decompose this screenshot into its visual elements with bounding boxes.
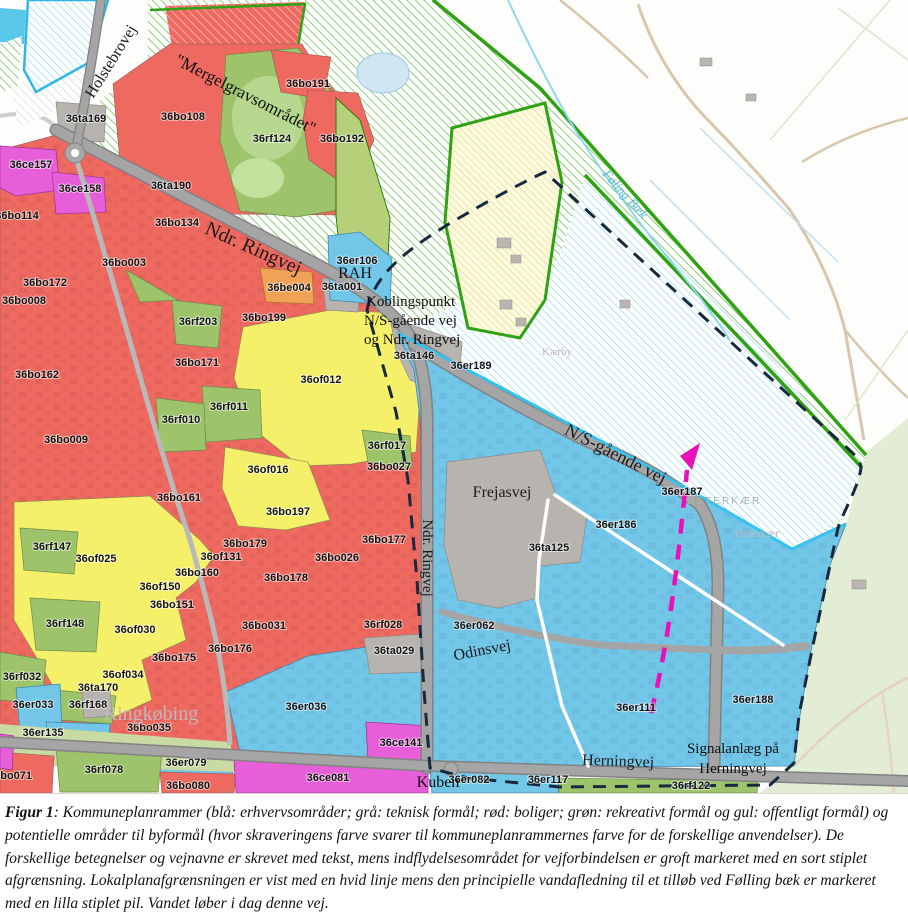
area-code-label: 36rf122 <box>672 780 711 792</box>
road-label: Herningvej <box>582 752 655 772</box>
area-code-label: 36rf032 <box>3 671 42 683</box>
caption-text: : Kommuneplanrammer (blå: erhvervsområde… <box>5 804 888 912</box>
area-code-label: 36er189 <box>451 360 492 372</box>
area-code-label: 36bo162 <box>15 369 59 381</box>
area-code-label: 36bo176 <box>208 643 252 655</box>
pond <box>357 53 409 93</box>
area-code-label: 36of030 <box>115 624 156 636</box>
area-code-label: 36er186 <box>596 519 637 531</box>
area-code-label: 36bo175 <box>152 652 196 664</box>
area-code-label: 36bo179 <box>223 538 267 550</box>
area-code-label: 36bo114 <box>0 210 40 222</box>
area-code-label: 36bo161 <box>157 492 201 504</box>
map-canvas: 36ta16936bo10836rf12436bo19136bo19236ce1… <box>0 0 908 793</box>
road-label: Frejasvej <box>473 484 532 501</box>
area-code-label: 36ta146 <box>394 350 434 362</box>
east-branch-road <box>717 646 806 651</box>
area-code-label: 36ta170 <box>78 682 118 694</box>
area-code-label: 36ce157 <box>10 159 53 171</box>
area-code-label: 36bo178 <box>264 572 308 584</box>
area-code-label: 36er033 <box>13 699 54 711</box>
area-code-label: 36bo160 <box>175 567 219 579</box>
ann-label: Koblingspunkt <box>366 294 456 310</box>
placecaps-label: ØSTERKÆR <box>687 496 761 507</box>
area-code-label: 36er036 <box>286 701 327 713</box>
figure-caption: Figur 1: Kommuneplanrammer (blå: erhverv… <box>0 793 908 922</box>
area-code-label: 36rf010 <box>162 414 201 426</box>
area-code-label: 36rf124 <box>253 133 292 145</box>
ann-label: og Ndr. Ringvej <box>364 332 460 348</box>
area-code-label: 36ce081 <box>307 772 350 784</box>
area-code-label: 36bo177 <box>362 534 406 546</box>
area-code-label: 36bo071 <box>0 770 32 782</box>
area-code-label: 36rf147 <box>33 541 72 553</box>
area-code-label: 36ce158 <box>59 183 102 195</box>
area-code-label: 36er188 <box>733 694 774 706</box>
area-code-label: 36rf028 <box>364 619 403 631</box>
area-code-label: 36ta001 <box>322 281 362 293</box>
area-code-label: 36of150 <box>140 581 181 593</box>
area-code-label: 36bo080 <box>166 780 210 792</box>
area-code-label: 36ta029 <box>374 645 414 657</box>
area-code-label: 36er111 <box>616 702 656 714</box>
area-code-label: 36bo197 <box>266 506 310 518</box>
ann-label: RAH <box>338 265 372 282</box>
place-label: Ringkøbing <box>104 703 198 725</box>
figure: 36ta16936bo10836rf12436bo19136bo19236ce1… <box>0 0 908 922</box>
area-code-label: 36bo191 <box>286 78 330 90</box>
area-code-label: 36er135 <box>23 727 64 739</box>
kommuneplan-map: 36ta16936bo10836rf12436bo19136bo19236ce1… <box>0 0 908 793</box>
area-code-label: 36ta190 <box>151 180 191 192</box>
road-label: Ndr. Ringvej <box>419 519 435 597</box>
area-code-label: 36bo134 <box>155 217 200 229</box>
area-code-label: 36bo026 <box>315 552 359 564</box>
area-code-label: 36rf017 <box>368 440 407 452</box>
area-code-label: 36rf011 <box>210 401 248 413</box>
area-code-label: 36ce141 <box>380 737 423 749</box>
area-code-label: 36bo027 <box>367 461 411 473</box>
area-code-label: 36bo192 <box>320 133 364 145</box>
zone-36rf011 <box>202 386 262 442</box>
caption-figure-number: Figur 1 <box>5 804 54 821</box>
ann-label: N/S-gående vej <box>364 313 457 329</box>
area-code-label: 36bo199 <box>242 312 286 324</box>
ann-label: Herningvej <box>699 761 766 777</box>
area-code-label: 36ta125 <box>529 542 569 554</box>
area-code-label: 36rf078 <box>85 764 124 776</box>
area-code-label: 36of016 <box>248 464 289 476</box>
area-code-label: 36of034 <box>103 669 145 681</box>
place-label: Østerkær <box>735 526 779 540</box>
ann-label: Signalanlæg på <box>687 741 779 757</box>
area-code-label: 36bo108 <box>161 111 205 123</box>
area-code-label: 36of025 <box>76 553 117 565</box>
area-code-label: 36bo171 <box>175 357 219 369</box>
zone-36ce157 <box>0 146 60 196</box>
area-code-label: 36bo003 <box>102 257 146 269</box>
area-code-label: 36bo151 <box>150 599 194 611</box>
roundabout-center <box>71 149 79 157</box>
area-code-label: 36er062 <box>454 620 495 632</box>
area-code-label: 36rf148 <box>46 618 85 630</box>
area-code-label: 36of012 <box>301 374 342 386</box>
area-code-label: 36bo031 <box>242 620 286 632</box>
area-code-label: 36bo008 <box>2 295 46 307</box>
golf-clearing-2 <box>232 158 284 198</box>
area-code-label: 36bo009 <box>44 434 88 446</box>
area-code-label: 36bo172 <box>23 277 67 289</box>
area-code-label: 36rf168 <box>69 699 108 711</box>
area-code-label: 36er079 <box>166 757 207 769</box>
ann-label: Kuben <box>417 774 460 791</box>
area-code-label: 36er117 <box>528 774 568 786</box>
area-code-label: 36rf203 <box>179 316 218 328</box>
place-label: Kærby <box>542 346 572 358</box>
blue-solid-northwest <box>0 8 26 44</box>
area-code-label: 36of131 <box>201 551 242 563</box>
area-code-label: 36ta169 <box>66 113 106 125</box>
area-code-label: 36be004 <box>267 282 311 294</box>
